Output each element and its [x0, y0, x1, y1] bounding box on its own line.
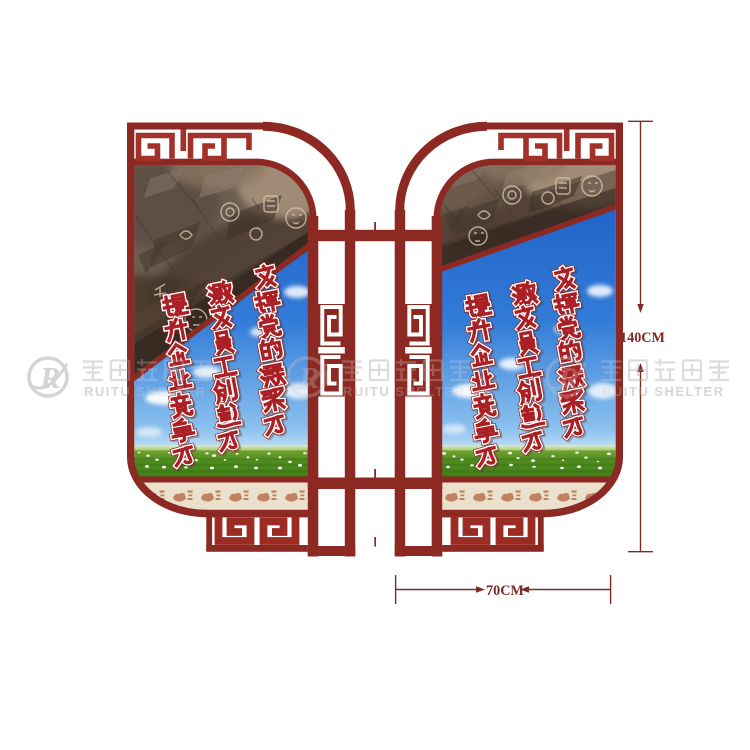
svg-text:70CM: 70CM — [486, 583, 524, 599]
svg-text:140CM: 140CM — [620, 330, 665, 346]
